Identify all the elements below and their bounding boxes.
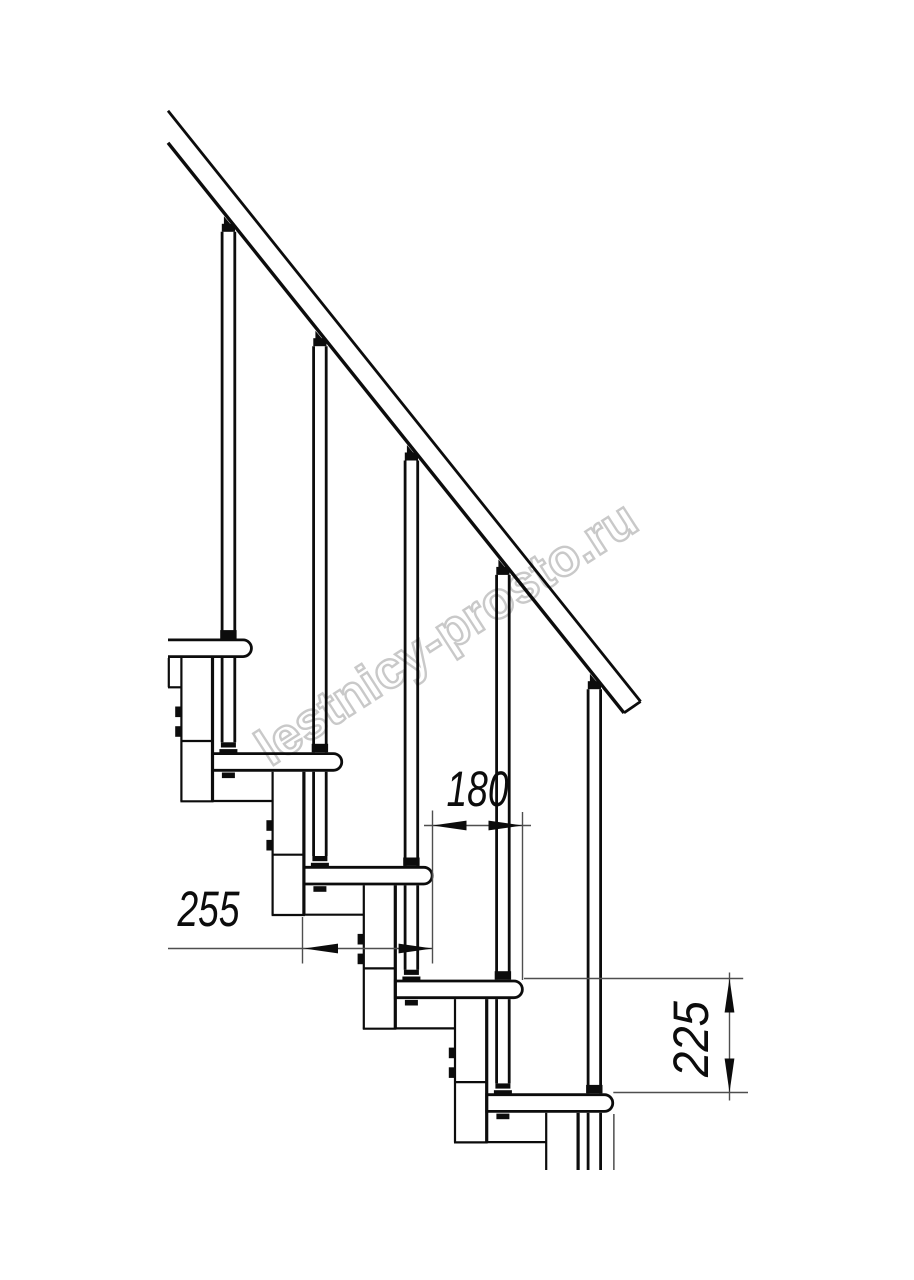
- svg-text:255: 255: [177, 881, 240, 937]
- svg-text:180: 180: [447, 761, 509, 817]
- svg-text:225: 225: [663, 1001, 719, 1078]
